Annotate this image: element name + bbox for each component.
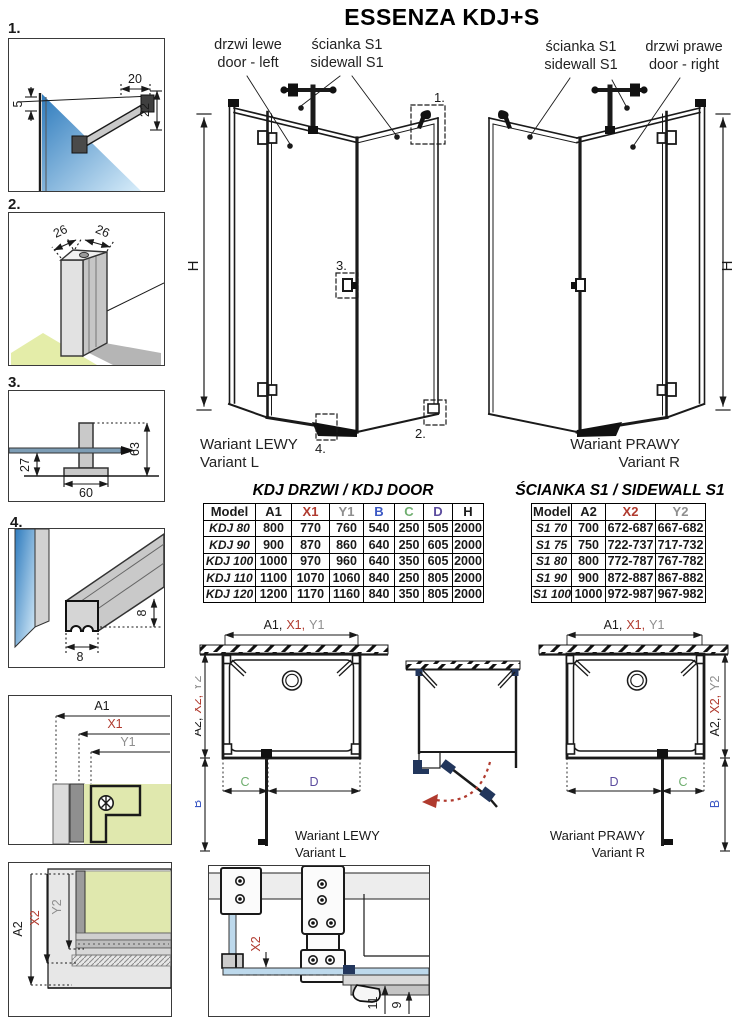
clip bbox=[343, 965, 355, 974]
table-cell: 1060 bbox=[330, 570, 364, 587]
corner-bracket bbox=[222, 954, 243, 968]
glass-clamp bbox=[72, 136, 87, 153]
wall-profile bbox=[70, 784, 84, 842]
shower-tray bbox=[230, 660, 354, 751]
table-cell: 1070 bbox=[292, 570, 330, 587]
detail-3-number: 3. bbox=[8, 374, 21, 391]
plan-view-right: A1,X1,Y1 bbox=[532, 616, 740, 859]
callout-dot bbox=[394, 134, 400, 140]
table-cell: 2000 bbox=[453, 520, 484, 537]
variant-left-pl: Wariant LEWY bbox=[200, 436, 350, 454]
door-handle bbox=[576, 279, 585, 291]
glass-panel bbox=[84, 871, 171, 933]
door-table: Model A1 X1 Y1 B C D H KDJ 80 800 770 76… bbox=[203, 503, 484, 603]
dim-26-right: 26 bbox=[93, 222, 111, 240]
door-handle bbox=[664, 839, 673, 845]
table-cell: 700 bbox=[572, 520, 606, 537]
table-cell: 1170 bbox=[292, 586, 330, 603]
table-cell: 870 bbox=[292, 537, 330, 554]
dim-a2: A2, bbox=[708, 718, 722, 737]
corner-braces bbox=[420, 671, 515, 689]
section-v-geometry: A2 X2 Y2 bbox=[11, 869, 171, 988]
callout-2-label: 2. bbox=[415, 426, 426, 441]
dim-9: 9 bbox=[390, 1001, 404, 1008]
table-cell: KDJ 110 bbox=[204, 570, 256, 587]
detail-2-panel: 26 26 bbox=[8, 212, 165, 366]
plan-variant-right-en: Variant R bbox=[592, 845, 645, 859]
detail-1-number: 1. bbox=[8, 20, 21, 37]
door-swing-diagram bbox=[398, 628, 528, 844]
variant-right-pl: Wariant PRAWY bbox=[540, 436, 680, 454]
support-post bbox=[79, 423, 93, 468]
label-door-left: drzwi lewe door - left bbox=[192, 36, 304, 72]
dim-y2: Y2 bbox=[50, 899, 64, 914]
sidewall-table-title: ŚCIANKA S1 / SIDEWALL S1 bbox=[500, 482, 740, 500]
dim-x1: X1 bbox=[107, 717, 122, 731]
dim-y1: Y1 bbox=[309, 618, 324, 632]
plan-right-geometry: A1,X1,Y1 bbox=[539, 618, 730, 859]
table-cell: 800 bbox=[572, 553, 606, 570]
dim-a2: A2 bbox=[11, 921, 25, 936]
glass-pane bbox=[15, 529, 35, 647]
detail-4-drawing: 8 8 bbox=[9, 529, 164, 667]
door-handle bbox=[479, 786, 495, 802]
dim-y1: Y1 bbox=[649, 618, 664, 632]
plan-variant-right-pl: Wariant PRAWY bbox=[550, 828, 645, 843]
table-cell: 970 bbox=[292, 553, 330, 570]
table-cell: 717-732 bbox=[656, 537, 706, 554]
table-cell: 605 bbox=[424, 553, 453, 570]
hinge-detail-panel: X2 11 9 bbox=[208, 865, 430, 1017]
threshold bbox=[577, 422, 622, 437]
col-model: Model bbox=[532, 504, 572, 521]
profile-side bbox=[83, 252, 107, 356]
dim-22: 22 bbox=[138, 103, 152, 117]
callout-dot bbox=[527, 134, 533, 140]
glass-bar bbox=[9, 448, 121, 453]
dim-y2: Y2 bbox=[195, 676, 204, 691]
col-d: D bbox=[424, 504, 453, 521]
dim-a2: A2, bbox=[195, 718, 204, 737]
corner-profile bbox=[428, 404, 439, 413]
detail-3-geometry: 63 27 60 bbox=[9, 423, 159, 500]
variant-left-en: Variant L bbox=[200, 454, 350, 472]
table-cell: 972-987 bbox=[606, 586, 656, 603]
profile-front bbox=[61, 260, 83, 356]
dim-60: 60 bbox=[79, 486, 93, 500]
screw-hole bbox=[80, 252, 89, 257]
wall-bracket bbox=[695, 99, 706, 107]
col-b: B bbox=[364, 504, 395, 521]
col-c: C bbox=[395, 504, 424, 521]
dim-b: B bbox=[195, 800, 204, 808]
table-cell: 722-737 bbox=[606, 537, 656, 554]
col-x2: X2 bbox=[606, 504, 656, 521]
bottom-rail-3 bbox=[76, 948, 171, 955]
right-enclosure-3d: H bbox=[489, 78, 736, 437]
shower-tray bbox=[574, 660, 698, 751]
dim-d: D bbox=[309, 775, 318, 789]
variant-right-en: Variant R bbox=[540, 454, 680, 472]
door-table-title: KDJ DRZWI / KDJ DOOR bbox=[203, 482, 483, 500]
door-handle-knob bbox=[351, 282, 357, 289]
enclosure-frame bbox=[567, 654, 704, 758]
door-pivot bbox=[261, 749, 272, 758]
table-cell: 1160 bbox=[330, 586, 364, 603]
table-cell: 800 bbox=[256, 520, 292, 537]
label-door-left-pl: drzwi lewe bbox=[192, 36, 304, 54]
detail-4-panel: 8 8 bbox=[8, 528, 165, 668]
table-cell: 805 bbox=[424, 586, 453, 603]
top-bracket-right bbox=[591, 84, 647, 135]
detail-1-geometry: 20 5 22 bbox=[11, 72, 162, 191]
table-cell: 772-787 bbox=[606, 553, 656, 570]
section-vertical-panel: A2 X2 Y2 bbox=[8, 862, 172, 1017]
callout-dot bbox=[624, 105, 630, 111]
table-cell: 840 bbox=[364, 570, 395, 587]
table-cell: 960 bbox=[330, 553, 364, 570]
label-door-left-en: door - left bbox=[192, 54, 304, 72]
col-a1: A1 bbox=[256, 504, 292, 521]
table-row: S1 70 700 672-687 667-682 bbox=[532, 520, 706, 537]
callout-1-label: 1. bbox=[434, 90, 445, 105]
callout-dot bbox=[630, 144, 636, 150]
table-cell: 2000 bbox=[453, 570, 484, 587]
door-handle-knob bbox=[571, 282, 577, 289]
table-cell: 900 bbox=[256, 537, 292, 554]
bottom-rail-upper bbox=[343, 975, 429, 985]
table-cell: 760 bbox=[330, 520, 364, 537]
dim-8-side: 8 bbox=[135, 609, 149, 616]
glass-horizontal bbox=[223, 968, 429, 975]
table-row: S1 90 900 872-887 867-882 bbox=[532, 570, 706, 587]
table-cell: 1200 bbox=[256, 586, 292, 603]
section-h-geometry: A1 X1 Y1 bbox=[53, 699, 171, 844]
detail-1-drawing: 20 5 22 bbox=[9, 39, 164, 191]
corner-hook bbox=[498, 110, 512, 129]
dim-27: 27 bbox=[18, 458, 32, 472]
label-door-right-en: door - right bbox=[628, 56, 740, 74]
table-cell: KDJ 120 bbox=[204, 586, 256, 603]
table-row: S1 80 800 772-787 767-782 bbox=[532, 553, 706, 570]
variant-left-label: Wariant LEWY Variant L bbox=[200, 436, 350, 472]
detail-4-geometry: 8 8 bbox=[15, 529, 164, 664]
table-cell: 2000 bbox=[453, 553, 484, 570]
table-cell: KDJ 90 bbox=[204, 537, 256, 554]
col-model: Model bbox=[204, 504, 256, 521]
table-cell: 900 bbox=[572, 570, 606, 587]
bracket-plate-left bbox=[221, 868, 261, 914]
table-cell: 860 bbox=[330, 537, 364, 554]
plan-left-side-dim-label: A2,X2,Y2 bbox=[195, 676, 204, 737]
callout-3-label: 3. bbox=[336, 258, 347, 273]
wall-bracket bbox=[228, 99, 239, 107]
door-hinge bbox=[440, 759, 456, 774]
hinge-connector bbox=[307, 934, 339, 950]
dim-d: D bbox=[609, 775, 618, 789]
table-cell: S1 70 bbox=[532, 520, 572, 537]
section-horizontal-panel: A1 X1 Y1 bbox=[8, 695, 172, 845]
dim-26-left: 26 bbox=[51, 222, 70, 241]
table-cell: 2000 bbox=[453, 537, 484, 554]
dim-63: 63 bbox=[128, 442, 142, 456]
plan-left-geometry: A1,X1,Y1 bbox=[195, 618, 388, 859]
table-cell: 805 bbox=[424, 570, 453, 587]
detail-2-drawing: 26 26 bbox=[9, 213, 164, 365]
label-sidewall-right-en: sidewall S1 bbox=[525, 56, 637, 74]
detail-3-drawing: 63 27 60 bbox=[9, 391, 164, 501]
table-row: S1 100 1000 972-987 967-982 bbox=[532, 586, 706, 603]
table-cell: 505 bbox=[424, 520, 453, 537]
label-sidewall-right-pl: ścianka S1 bbox=[525, 38, 637, 56]
dim-c: C bbox=[678, 775, 687, 789]
table-cell: 867-882 bbox=[656, 570, 706, 587]
table-cell: 605 bbox=[424, 537, 453, 554]
table-cell: 640 bbox=[364, 537, 395, 554]
dim-a1: A1, bbox=[604, 618, 623, 632]
foot-plate bbox=[64, 468, 108, 476]
dim-c: C bbox=[240, 775, 249, 789]
variant-right-label: Wariant PRAWY Variant R bbox=[540, 436, 680, 472]
hinge-geometry: X2 11 9 bbox=[209, 866, 429, 1014]
table-cell: 1000 bbox=[256, 553, 292, 570]
table-cell: 667-682 bbox=[656, 520, 706, 537]
sidewall-table: Model A2 X2 Y2 S1 70 700 672-687 667-682… bbox=[531, 503, 706, 603]
plan-left-top-dim-label: A1,X1,Y1 bbox=[264, 618, 325, 632]
wall-clip bbox=[416, 669, 423, 676]
swing-arrow bbox=[422, 794, 438, 808]
label-sidewall-right: ścianka S1 sidewall S1 bbox=[525, 38, 637, 74]
col-y2: Y2 bbox=[656, 504, 706, 521]
table-cell: 350 bbox=[395, 586, 424, 603]
dim-y1: Y1 bbox=[120, 735, 135, 749]
col-h: H bbox=[453, 504, 484, 521]
main-3d-diagrams: H 3. bbox=[170, 30, 740, 478]
detail-2-geometry: 26 26 bbox=[11, 222, 164, 365]
table-cell: 872-887 bbox=[606, 570, 656, 587]
table-cell: 640 bbox=[364, 553, 395, 570]
table-cell: S1 75 bbox=[532, 537, 572, 554]
table-cell: KDJ 100 bbox=[204, 553, 256, 570]
panel-edge bbox=[35, 529, 49, 627]
dim-b: B bbox=[708, 800, 722, 808]
dim-x2: X2 bbox=[249, 936, 263, 951]
plan-right-dims bbox=[567, 654, 730, 851]
detail-1-panel: 20 5 22 bbox=[8, 38, 165, 192]
table-cell: S1 90 bbox=[532, 570, 572, 587]
swing-geometry bbox=[406, 661, 520, 808]
label-door-right: drzwi prawe door - right bbox=[628, 38, 740, 74]
plan-variant-left-en: Variant L bbox=[295, 845, 346, 859]
callout-dot bbox=[298, 105, 304, 111]
table-cell: 540 bbox=[364, 520, 395, 537]
table-cell: 767-782 bbox=[656, 553, 706, 570]
floor-hatch bbox=[72, 955, 171, 966]
detail-2-number: 2. bbox=[8, 196, 21, 213]
dim-a1: A1, bbox=[264, 618, 283, 632]
table-cell: 250 bbox=[395, 520, 424, 537]
plan-variant-left-pl: Wariant LEWY bbox=[295, 828, 380, 843]
table-row: KDJ 110 1100 1070 1060 840 250 805 2000 bbox=[204, 570, 484, 587]
table-cell: 250 bbox=[395, 570, 424, 587]
table-cell: 840 bbox=[364, 586, 395, 603]
col-x1: X1 bbox=[292, 504, 330, 521]
product-sheet: ESSENZA KDJ+S 1. bbox=[0, 0, 740, 1026]
table-cell: 672-687 bbox=[606, 520, 656, 537]
table-cell: 250 bbox=[395, 537, 424, 554]
door-pivot bbox=[657, 749, 668, 758]
door-handle bbox=[343, 279, 352, 291]
enclosure-frame bbox=[223, 654, 360, 758]
table-cell: 2000 bbox=[453, 586, 484, 603]
dim-a1: A1 bbox=[94, 699, 109, 713]
dim-x1: X1, bbox=[286, 618, 305, 632]
hinge-plate-lower bbox=[301, 950, 345, 982]
table-cell: 770 bbox=[292, 520, 330, 537]
plan-view-left: A1,X1,Y1 bbox=[195, 616, 395, 859]
dim-x2: X2 bbox=[28, 910, 42, 925]
hinge-detail-drawing: X2 11 9 bbox=[209, 866, 429, 1016]
corner-braces bbox=[573, 660, 698, 676]
col-y1: Y1 bbox=[330, 504, 364, 521]
left-enclosure-3d: H 3. bbox=[185, 76, 446, 456]
plan-right-side-dim-label: A2,X2,Y2 bbox=[708, 676, 722, 737]
door-table-header-row: Model A1 X1 Y1 B C D H bbox=[204, 504, 484, 521]
dim-x2: X2, bbox=[708, 695, 722, 714]
section-vertical-drawing: A2 X2 Y2 bbox=[9, 863, 171, 1016]
table-cell: 1000 bbox=[572, 586, 606, 603]
dim-20: 20 bbox=[128, 72, 142, 86]
plan-right-top-dim-label: A1,X1,Y1 bbox=[604, 618, 665, 632]
table-row: KDJ 90 900 870 860 640 250 605 2000 bbox=[204, 537, 484, 554]
callout-dot bbox=[287, 143, 293, 149]
section-horizontal-drawing: A1 X1 Y1 bbox=[9, 696, 171, 844]
dim-y2: Y2 bbox=[708, 676, 722, 691]
bottom-rail-1 bbox=[76, 933, 171, 940]
seal-section bbox=[66, 601, 98, 631]
table-cell: KDJ 80 bbox=[204, 520, 256, 537]
dim-x2: X2, bbox=[195, 695, 204, 714]
dim-11: 11 bbox=[366, 996, 380, 1009]
threshold-step bbox=[419, 752, 440, 768]
door-handle bbox=[258, 839, 267, 845]
h-label-right: H bbox=[719, 261, 736, 272]
label-sidewall-left: ścianka S1 sidewall S1 bbox=[291, 36, 403, 72]
detail-3-panel: 63 27 60 bbox=[8, 390, 165, 502]
label-sidewall-left-en: sidewall S1 bbox=[291, 54, 403, 72]
table-cell: S1 80 bbox=[532, 553, 572, 570]
table-cell: 350 bbox=[395, 553, 424, 570]
dim-x1: X1, bbox=[626, 618, 645, 632]
table-cell: S1 100 bbox=[532, 586, 572, 603]
table-row: S1 75 750 722-737 717-732 bbox=[532, 537, 706, 554]
table-row: KDJ 80 800 770 760 540 250 505 2000 bbox=[204, 520, 484, 537]
page-title: ESSENZA KDJ+S bbox=[142, 4, 740, 31]
col-a2: A2 bbox=[572, 504, 606, 521]
label-sidewall-left-pl: ścianka S1 bbox=[291, 36, 403, 54]
table-cell: 1100 bbox=[256, 570, 292, 587]
table-cell: 750 bbox=[572, 537, 606, 554]
h-label-left: H bbox=[185, 261, 202, 272]
threshold bbox=[312, 422, 357, 437]
dim-8-bottom: 8 bbox=[77, 650, 84, 664]
table-cell: 967-982 bbox=[656, 586, 706, 603]
table-row: KDJ 100 1000 970 960 640 350 605 2000 bbox=[204, 553, 484, 570]
dim-5: 5 bbox=[11, 100, 25, 107]
label-door-right-pl: drzwi prawe bbox=[628, 38, 740, 56]
table-row: KDJ 120 1200 1170 1160 840 350 805 2000 bbox=[204, 586, 484, 603]
corner-braces bbox=[229, 660, 354, 676]
sidewall-table-header-row: Model A2 X2 Y2 bbox=[532, 504, 706, 521]
wall-section bbox=[53, 784, 69, 844]
